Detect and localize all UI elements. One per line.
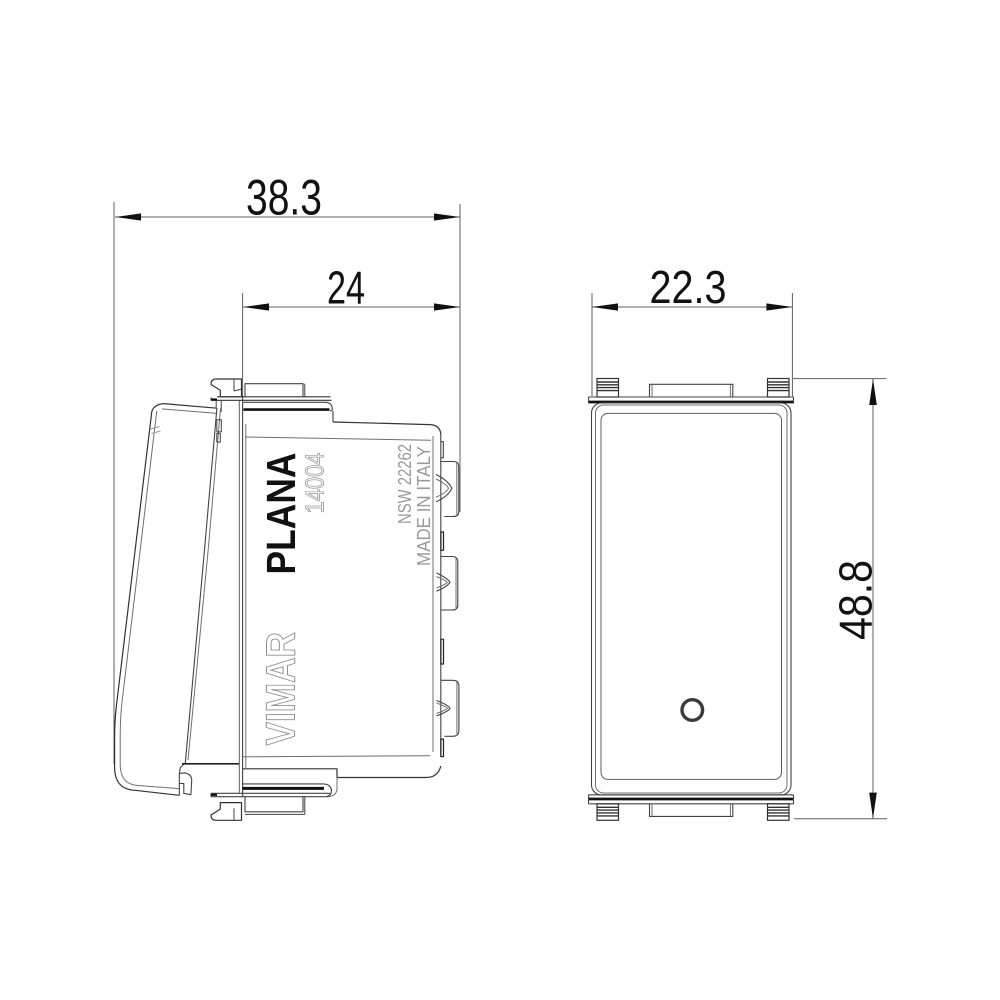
svg-text:PLANA: PLANA: [258, 453, 304, 575]
svg-text:24: 24: [327, 262, 365, 314]
svg-text:VIMAR: VIMAR: [258, 632, 304, 746]
svg-text:22.3: 22.3: [650, 261, 727, 313]
svg-text:38.3: 38.3: [246, 170, 322, 226]
svg-text:14004: 14004: [300, 453, 330, 514]
svg-text:MADE IN ITALY: MADE IN ITALY: [413, 446, 434, 566]
svg-text:NSW 22262: NSW 22262: [394, 444, 415, 524]
svg-text:48.8: 48.8: [830, 560, 882, 640]
